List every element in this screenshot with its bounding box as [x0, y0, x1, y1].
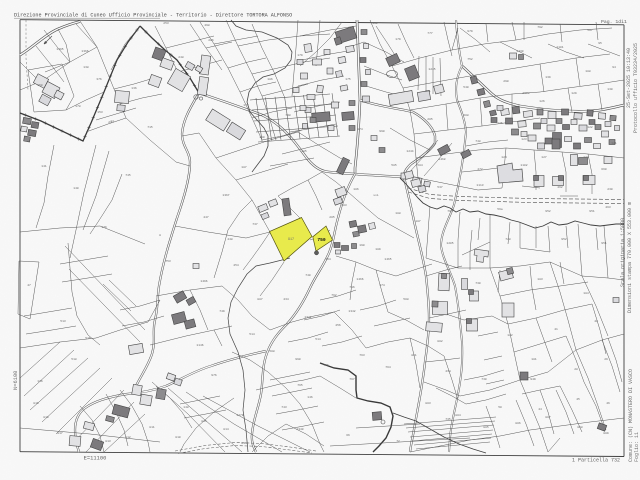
svg-text:1 Particella 732: 1 Particella 732 — [572, 458, 620, 464]
svg-text:E=11100: E=11100 — [84, 456, 107, 462]
svg-text:Protocollo ufficio T93234/2025: Protocollo ufficio T93234/2025 — [633, 43, 639, 133]
svg-text:25-Set-2025 10:13:40: 25-Set-2025 10:13:40 — [626, 48, 632, 108]
svg-text:Direzione Provinciale di Cuneo: Direzione Provinciale di Cuneo Ufficio P… — [14, 13, 292, 19]
svg-text:Foglio: 11: Foglio: 11 — [634, 432, 640, 462]
svg-text:Dimensioni stampa 770.000 X 55: Dimensioni stampa 770.000 X 553.000 m — [627, 202, 633, 313]
svg-text:N=6100: N=6100 — [13, 371, 19, 390]
